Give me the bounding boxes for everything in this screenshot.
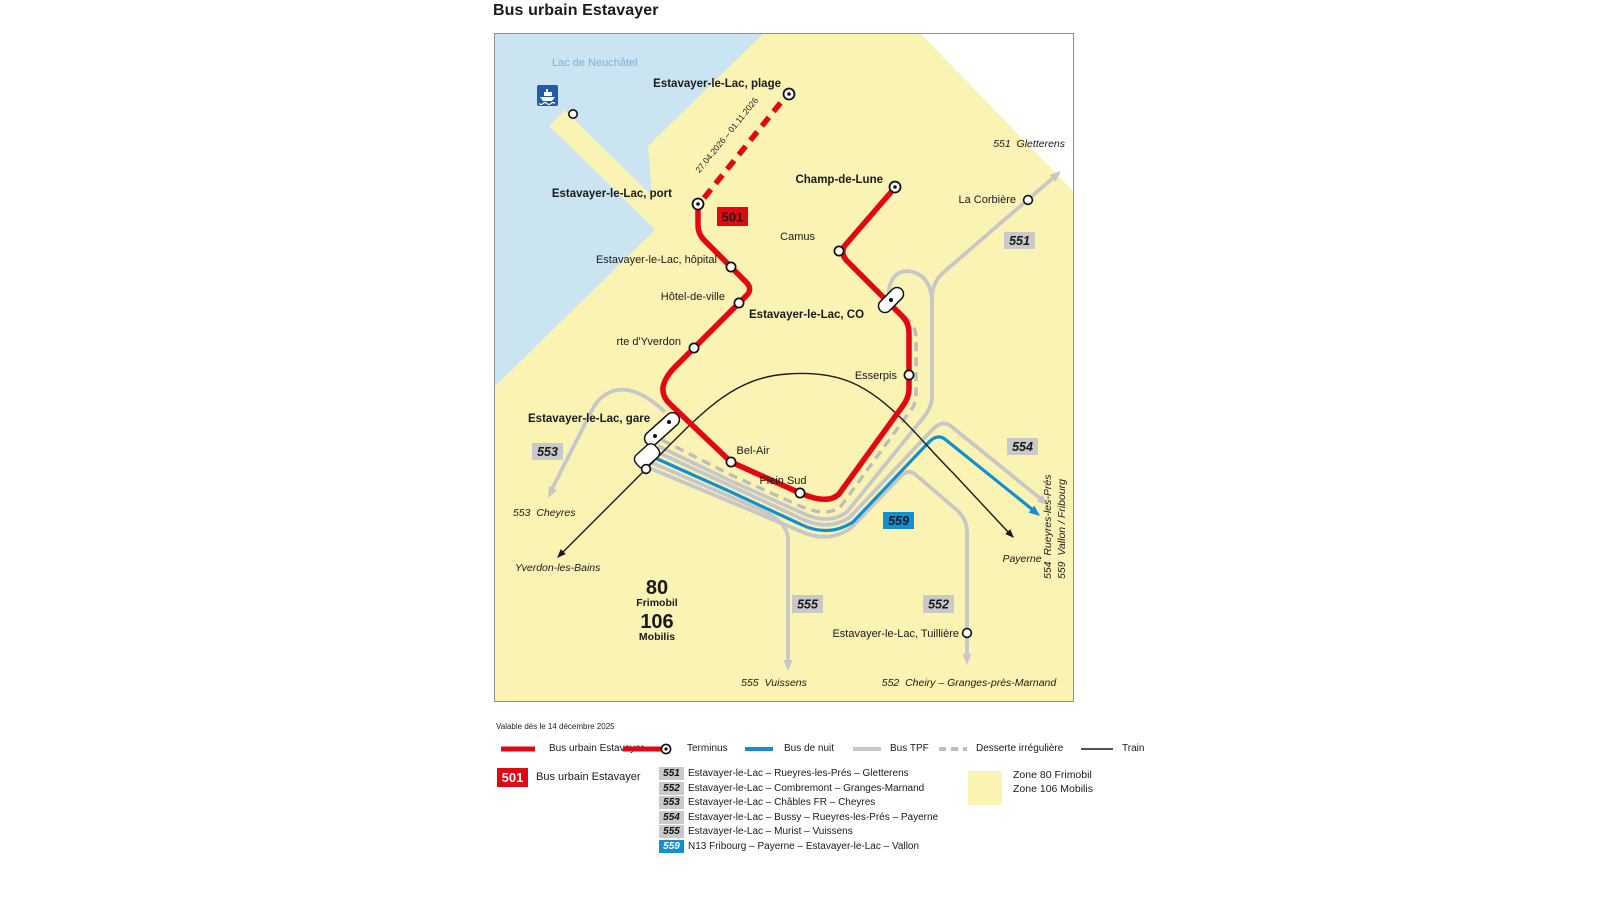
legend-line-types: Bus urbain Estavayer Terminus Bus de nui… <box>0 741 1600 757</box>
page-title: Bus urbain Estavayer <box>493 2 659 20</box>
legend-swatch-bus-urbain <box>500 741 536 757</box>
terminus-dot-champ-de-lune-center <box>893 185 897 189</box>
stop-label-rte-yverdon: rte d'Yverdon <box>617 336 681 348</box>
stop-dot-la-corbiere <box>1024 196 1033 205</box>
seasonal-note-label: 27.04.2026 – 01.11.2026 <box>693 95 760 174</box>
legend-badge-501: 501 <box>497 768 528 787</box>
badge-559-label: 559 <box>888 514 909 528</box>
dest-label-payerne: Payerne <box>1002 553 1041 565</box>
legend-route-badge-554: 554 <box>659 811 684 824</box>
stop-dot-debarcadere <box>569 110 577 118</box>
stop-dot-esserpis <box>904 370 913 379</box>
stop-label-co: Estavayer-le-Lac, CO <box>749 309 864 321</box>
arrow-552-cheiry <box>963 654 972 665</box>
badge-555-label: 555 <box>797 598 819 612</box>
stop-dot-bel-air <box>726 457 735 466</box>
dest-label-rueyres: 554 Rueyres-les-Prés <box>1042 474 1054 579</box>
stop-dot-plein-sud <box>795 488 804 497</box>
stop-label-tuilliere: Estavayer-le-Lac, Tuillière <box>832 628 959 640</box>
stop-dot-rte-yverdon <box>689 343 698 352</box>
stop-label-la-corbiere: La Corbière <box>959 194 1016 206</box>
stop-label-plein-sud: Plein Sud <box>759 475 806 487</box>
legend-route-badge-553: 553 <box>659 796 684 809</box>
badge-552-label: 552 <box>928 598 949 612</box>
legend-label-501: Bus urbain Estavayer <box>536 771 641 783</box>
fare-zone-labels: 80 Frimobil 106 Mobilis <box>636 577 677 643</box>
legend-swatch-train <box>1080 741 1114 757</box>
validity-note: Valable dès le 14 décembre 2025 <box>496 722 615 731</box>
arrow-553-cheyres <box>544 486 557 500</box>
legend-swatch-bus-tpf <box>852 741 882 757</box>
dest-label-gletterens: 551 Gletterens <box>993 138 1066 150</box>
legend-route-label-559: N13 Fribourg – Payerne – Estavayer-le-La… <box>688 841 919 852</box>
legend-route-badge-559: 559 <box>659 840 684 853</box>
lake-label: Lac de Neuchâtel <box>552 57 638 69</box>
legend-label-terminus: Terminus <box>687 743 728 754</box>
legend-route-badge-551: 551 <box>659 767 684 780</box>
co-stop-dot <box>889 298 893 302</box>
dest-label-cheyres: 553 Cheyres <box>513 507 576 519</box>
legend-zone-80: Zone 80 Frimobil <box>1013 769 1092 781</box>
legend-label-train: Train <box>1122 743 1144 754</box>
zone-80-name: Frimobil <box>636 597 677 609</box>
stop-dot-hopital <box>726 262 735 271</box>
zone-106-name: Mobilis <box>639 631 675 643</box>
outside-zone-shape <box>921 34 1073 191</box>
legend-label-desserte: Desserte irrégulière <box>976 743 1063 754</box>
legend-label-bus-nuit: Bus de nuit <box>784 743 834 754</box>
stop-label-hotel-de-ville: Hôtel-de-ville <box>661 291 725 303</box>
stop-dot-camus <box>834 246 843 255</box>
terminus-dot-port-center <box>696 202 700 206</box>
stop-label-esserpis: Esserpis <box>855 370 898 382</box>
legend-route-badge-552: 552 <box>659 782 684 795</box>
dest-label-vuissens: 555 Vuissens <box>741 677 808 689</box>
legend-label-bus-tpf: Bus TPF <box>890 743 929 754</box>
legend-route-label-551: Estavayer-le-Lac – Rueyres-les-Prés – Gl… <box>688 768 909 779</box>
badge-554-label: 554 <box>1012 440 1033 454</box>
transit-map: Lac de Neuchâtel 27.04.2026 – 01.11.2026 <box>494 33 1074 702</box>
stop-label-port: Estavayer-le-Lac, port <box>552 188 672 200</box>
stop-label-camus: Camus <box>780 231 815 243</box>
legend-route-badge-555: 555 <box>659 825 684 838</box>
legend-swatch-bus-nuit <box>744 741 774 757</box>
dest-label-cheiry: 552 Cheiry – Granges-près-Marnand <box>882 677 1058 689</box>
gare-stop-dot-2 <box>667 420 671 424</box>
legend-zone-swatch <box>968 771 1002 805</box>
gare-stop-dot-1 <box>653 434 657 438</box>
ferry-icon-cabin <box>544 92 552 96</box>
arrow-555-vuissens <box>784 660 793 671</box>
legend-swatch-desserte <box>938 741 968 757</box>
legend-zone-106: Zone 106 Mobilis <box>1013 783 1093 795</box>
dest-label-vallon: 559 Vallon / Fribourg <box>1056 479 1068 579</box>
legend-route-label-553: Estavayer-le-Lac – Châbles FR – Cheyres <box>688 797 875 808</box>
stop-dot-tuilliere <box>963 629 972 638</box>
zone-80-number: 80 <box>646 577 668 599</box>
legend-route-label-554: Estavayer-le-Lac – Bussy – Rueyres-les-P… <box>688 812 938 823</box>
legend-route-label-555: Estavayer-le-Lac – Murist – Vuissens <box>688 826 853 837</box>
badge-501-label: 501 <box>722 210 744 225</box>
stop-label-bel-air: Bel-Air <box>736 445 769 457</box>
stop-dot-hotel-de-ville <box>734 298 743 307</box>
terminus-dot-plage-center <box>787 92 791 96</box>
badge-551-label: 551 <box>1009 234 1030 248</box>
badge-553-label: 553 <box>537 445 558 459</box>
dest-label-yverdon: Yverdon-les-Bains <box>515 562 601 574</box>
transit-map-canvas: Lac de Neuchâtel 27.04.2026 – 01.11.2026 <box>495 34 1073 701</box>
stop-label-gare: Estavayer-le-Lac, gare <box>528 413 650 425</box>
ferry-icon-mast <box>546 89 548 92</box>
gare-train-stop-dot <box>642 465 651 474</box>
zone-106-number: 106 <box>640 611 673 633</box>
stop-label-plage: Estavayer-le-Lac, plage <box>653 78 781 90</box>
ferry-icon <box>537 85 558 106</box>
stop-label-hopital: Estavayer-le-Lac, hôpital <box>596 254 717 266</box>
legend-route-label-552: Estavayer-le-Lac – Combremont – Granges-… <box>688 783 924 794</box>
stop-label-champ-de-lune: Champ-de-Lune <box>795 174 883 186</box>
legend-swatch-terminus <box>622 741 674 757</box>
termini <box>693 89 901 210</box>
co-interchange <box>876 285 906 315</box>
legend-route-list: 551 Estavayer-le-Lac – Rueyres-les-Prés … <box>659 767 1079 862</box>
